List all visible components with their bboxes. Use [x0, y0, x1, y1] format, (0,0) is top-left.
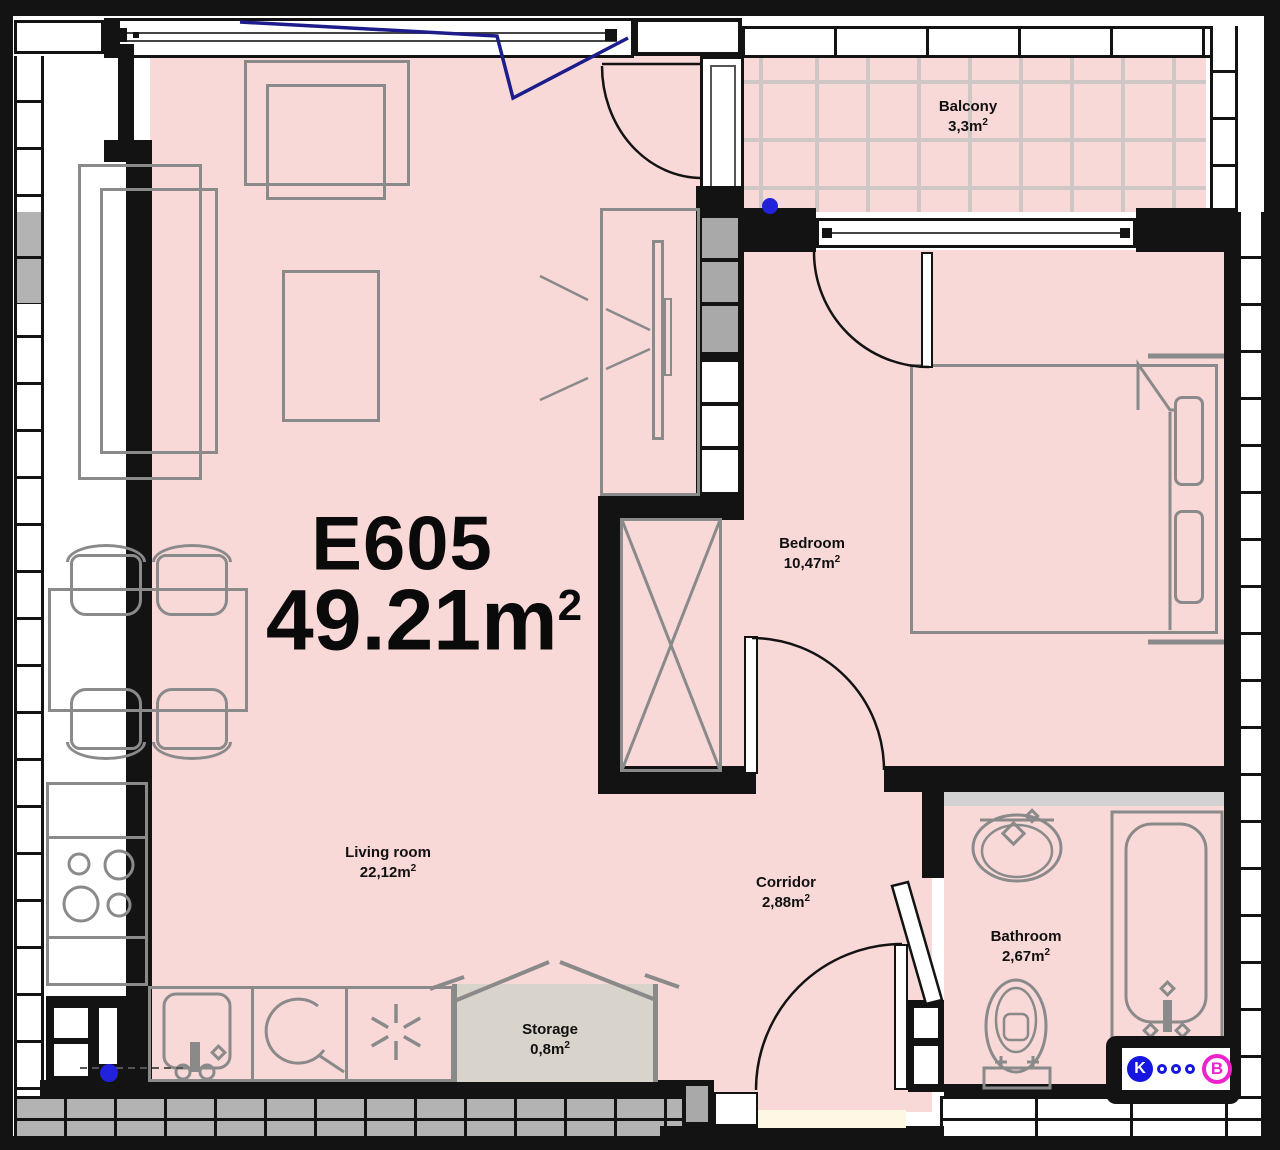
door-swing-arcs [602, 64, 929, 1090]
room-label-balcony: Balcony 3,3m2 [939, 98, 997, 137]
room-area: 10,47m2 [779, 554, 845, 574]
washbasin [973, 810, 1061, 881]
toilet [984, 980, 1050, 1088]
outer-frame-right [1264, 0, 1280, 1150]
room-label-corridor: Corridor 2,88m2 [756, 874, 816, 913]
bedroom-balcony-door-arc [814, 252, 929, 367]
utility-marker-dot [762, 198, 778, 214]
bed-details [1138, 356, 1224, 642]
fridge-snowflake-icon [372, 1004, 420, 1060]
window-opening-indicator [240, 22, 628, 98]
unit-area-value: 49.21m [266, 573, 558, 669]
bedroom-door-arc [752, 638, 884, 770]
room-name: Corridor [756, 874, 816, 893]
room-label-living-room: Living room 22,12m2 [345, 844, 431, 883]
unit-total-area: 49.21m2 [266, 572, 582, 671]
outer-frame-top [0, 0, 1280, 16]
room-name: Balcony [939, 98, 997, 117]
room-area: 3,3m2 [939, 117, 997, 137]
room-area: 22,12m2 [345, 863, 431, 883]
logo-dot-icon [1185, 1064, 1195, 1074]
room-area: 2,67m2 [991, 947, 1062, 967]
room-name: Living room [345, 844, 431, 863]
logo-dot-icon [1157, 1064, 1167, 1074]
room-label-bathroom: Bathroom 2,67m2 [991, 928, 1062, 967]
room-name: Bedroom [779, 535, 845, 554]
floor-plan: K B E605 49.21m2 Balcony 3,3m2 Bedroom 1… [0, 0, 1280, 1150]
storage-door-lines [430, 962, 679, 1002]
unit-area-sup: 2 [558, 581, 582, 630]
living-balcony-door-arc [602, 66, 702, 178]
room-label-storage: Storage 0,8m2 [522, 1021, 578, 1060]
brand-logo-inner: K B [1122, 1048, 1230, 1090]
logo-b-icon: B [1202, 1054, 1232, 1084]
plan-linework [0, 0, 1280, 1150]
logo-k-icon: K [1127, 1056, 1153, 1082]
logo-dot-icon [1171, 1064, 1181, 1074]
room-name: Storage [522, 1021, 578, 1040]
kitchen-sink [164, 994, 230, 1079]
room-name: Bathroom [991, 928, 1062, 947]
wardrobe-x [622, 520, 720, 770]
tv-rays [540, 276, 650, 400]
brand-logo: K B [1106, 1036, 1240, 1104]
dishwasher [266, 999, 344, 1072]
outer-frame-left [0, 0, 13, 1150]
room-area: 2,88m2 [756, 893, 816, 913]
outer-frame-bottom [0, 1136, 1280, 1150]
hob-burners [64, 851, 133, 921]
entrance-door-arc [756, 944, 902, 1090]
room-label-bedroom: Bedroom 10,47m2 [779, 535, 845, 574]
bathtub [1112, 812, 1222, 1038]
utility-marker-dot [100, 1064, 118, 1082]
room-area: 0,8m2 [522, 1040, 578, 1060]
